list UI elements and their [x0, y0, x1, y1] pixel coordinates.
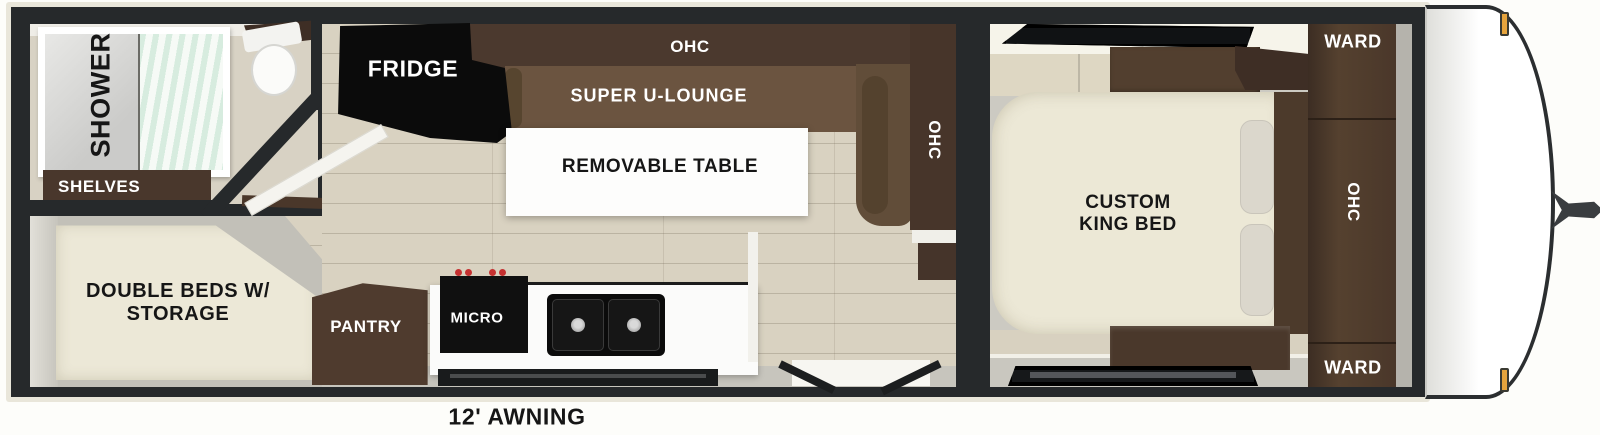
double-beds-label: DOUBLE BEDS W/ STORAGE	[76, 280, 281, 326]
wardrobe-seam-top	[1308, 118, 1396, 120]
stove-knob	[499, 269, 506, 276]
galley-ohc	[470, 24, 958, 68]
hitch-coupler	[1551, 187, 1600, 233]
galley-ohc-label: OHC	[670, 37, 710, 57]
bedroom-foot-cabinet	[1110, 326, 1290, 370]
stove-knob	[489, 269, 496, 276]
marker-light-top	[1500, 12, 1509, 36]
wardrobe-seam-bottom	[1308, 342, 1396, 344]
vent-bottom-inner	[1030, 372, 1236, 378]
king-bed-label: CUSTOM KING BED	[1066, 192, 1191, 236]
entry-wall-edge	[748, 232, 758, 362]
bed-pillow-top	[1240, 120, 1274, 214]
toilet-bowl	[251, 44, 297, 96]
ward-top-label: WARD	[1324, 32, 1381, 53]
front-cap	[1425, 5, 1555, 399]
shower-curtain	[138, 34, 223, 170]
lounge-side-ohc-label: OHC	[924, 120, 944, 160]
slide-step-tread	[450, 374, 706, 378]
bedroom-front-wall	[1396, 24, 1412, 387]
ward-bottom-label: WARD	[1324, 358, 1381, 379]
pantry-label: PANTRY	[330, 317, 402, 337]
shower-label: SHOWER	[86, 32, 117, 157]
awning-label: 12' AWNING	[448, 404, 585, 431]
bedroom-ohc-label: OHC	[1343, 182, 1363, 222]
fridge-label: FRIDGE	[368, 56, 459, 83]
stove-knob	[455, 269, 462, 276]
bed-pillow-bottom	[1240, 224, 1274, 316]
sink-drain-right	[627, 318, 641, 332]
rv-floorplan-diagram: SHOWER SHELVES DOUBLE BEDS W/ STORAGE OH…	[0, 0, 1600, 435]
bunk-room-wall	[30, 216, 58, 387]
lounge-right-bolster	[862, 76, 888, 214]
lounge-label: SUPER U-LOUNGE	[570, 86, 747, 107]
micro-label: MICRO	[451, 310, 504, 327]
wall-bath-bunk	[11, 200, 219, 216]
removable-table-label: REMOVABLE TABLE	[562, 156, 758, 178]
stove-knob	[465, 269, 472, 276]
shower-stall	[38, 27, 230, 177]
bed-base-strip	[1274, 92, 1308, 334]
lounge-step	[912, 230, 958, 243]
shelves-label: SHELVES	[58, 177, 140, 197]
small-cabinet	[918, 243, 958, 280]
marker-light-bottom	[1500, 368, 1509, 392]
wall-galley-bedroom	[956, 7, 990, 397]
sink-drain-left	[571, 318, 585, 332]
